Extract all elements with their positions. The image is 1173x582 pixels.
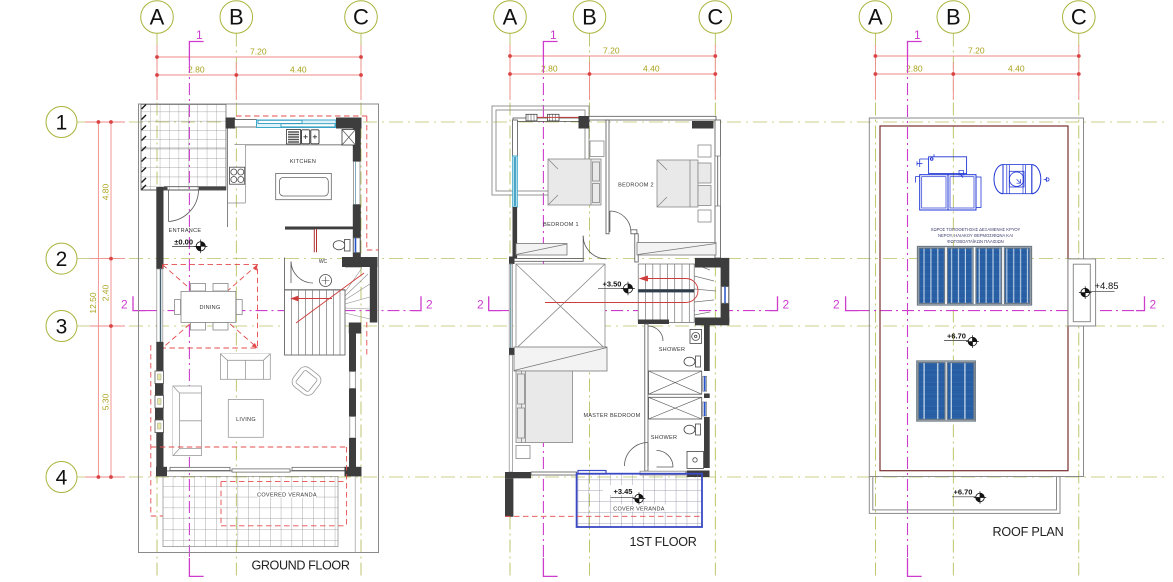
svg-text:A: A (150, 5, 165, 30)
svg-text:5.30: 5.30 (101, 393, 111, 410)
svg-text:B: B (229, 5, 244, 30)
svg-text:SHOWER: SHOWER (651, 435, 678, 441)
svg-text:DINING: DINING (199, 305, 220, 311)
svg-text:+4.85: +4.85 (1095, 281, 1119, 292)
svg-text:2: 2 (1150, 298, 1157, 312)
svg-text:B: B (946, 5, 961, 30)
svg-text:B: B (582, 5, 597, 30)
svg-text:4.40: 4.40 (643, 64, 660, 74)
svg-text:C: C (707, 5, 723, 30)
svg-text:KITCHEN: KITCHEN (290, 159, 316, 165)
svg-text:ΝΕΡΟΥ, ΗΛΙΑΚΟΥ ΘΕΡΜΟΣΙΦΩΝΑ ΚΑΙ: ΝΕΡΟΥ, ΗΛΙΑΚΟΥ ΘΕΡΜΟΣΙΦΩΝΑ ΚΑΙ (938, 233, 1013, 238)
svg-text:4.80: 4.80 (101, 183, 111, 200)
svg-text:COVERED VERANDA: COVERED VERANDA (257, 493, 317, 499)
svg-text:SHOWER: SHOWER (659, 347, 686, 353)
svg-text:1ST FLOOR: 1ST FLOOR (629, 535, 696, 549)
svg-text:BEDROOM 2: BEDROOM 2 (618, 183, 654, 189)
svg-text:3: 3 (56, 316, 68, 339)
svg-text:2: 2 (121, 298, 128, 312)
svg-text:1: 1 (550, 28, 557, 42)
svg-text:A: A (868, 5, 883, 30)
svg-text:4.40: 4.40 (1008, 64, 1025, 74)
svg-text:2: 2 (833, 298, 840, 312)
svg-text:ΦΩΤΟΒΟΛΤΑΪΚΩΝ ΠΛΑΙΣΙΩΝ: ΦΩΤΟΒΟΛΤΑΪΚΩΝ ΠΛΑΙΣΙΩΝ (947, 239, 1004, 244)
svg-text:2: 2 (477, 298, 484, 312)
svg-text:7.20: 7.20 (603, 46, 620, 56)
svg-text:+3.50: +3.50 (603, 280, 622, 289)
svg-text:ENTRANCE: ENTRANCE (169, 228, 202, 234)
svg-text:ΧΩΡΟΣ ΤΟΠΟΘΕΤΗΣΗΣ ΔΕΞΑΜΕΝΗΣ ΚΡ: ΧΩΡΟΣ ΤΟΠΟΘΕΤΗΣΗΣ ΔΕΞΑΜΕΝΗΣ ΚΡΥΟΥ (931, 227, 1021, 232)
svg-text:7.20: 7.20 (250, 47, 267, 57)
svg-text:+6.70: +6.70 (954, 488, 973, 497)
svg-text:MASTER BEDROOM: MASTER BEDROOM (583, 413, 640, 419)
svg-text:BEDROOM 1: BEDROOM 1 (543, 222, 579, 228)
svg-text:C: C (1071, 5, 1087, 30)
svg-text:2: 2 (426, 298, 433, 312)
svg-text:7.20: 7.20 (968, 46, 985, 56)
svg-text:ROOF PLAN: ROOF PLAN (993, 525, 1064, 539)
svg-text:2.40: 2.40 (101, 284, 111, 301)
svg-text:+3.45: +3.45 (614, 487, 633, 496)
svg-text:+6.70: +6.70 (947, 332, 966, 341)
svg-text:1: 1 (914, 28, 921, 42)
svg-text:1: 1 (196, 28, 203, 42)
svg-text:4: 4 (56, 467, 68, 490)
svg-text:2: 2 (783, 298, 790, 312)
svg-text:LIVING: LIVING (236, 417, 256, 423)
svg-text:4.40: 4.40 (290, 65, 307, 75)
svg-text:A: A (503, 5, 518, 30)
svg-text:GROUND FLOOR: GROUND FLOOR (251, 559, 349, 573)
svg-text:±0.00: ±0.00 (174, 238, 193, 247)
svg-text:COVER VERANDA: COVER VERANDA (613, 507, 665, 513)
svg-text:WC: WC (319, 259, 328, 265)
svg-text:1: 1 (56, 112, 68, 135)
svg-text:2: 2 (56, 248, 68, 271)
svg-text:2.80: 2.80 (188, 65, 205, 75)
svg-text:C: C (353, 5, 369, 30)
svg-text:12.50: 12.50 (88, 292, 98, 314)
svg-text:2.80: 2.80 (906, 64, 923, 74)
